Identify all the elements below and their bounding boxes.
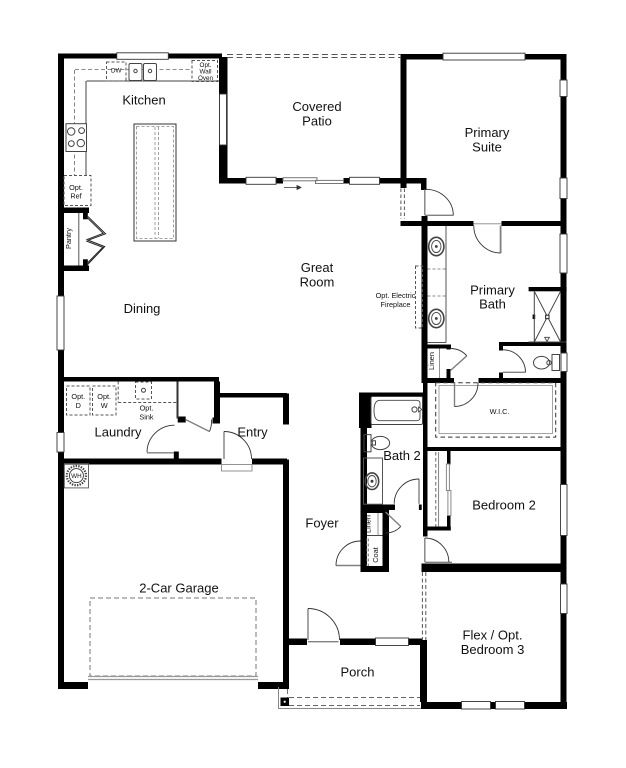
svg-text:Room: Room [300, 275, 335, 290]
svg-text:Opt.: Opt. [140, 404, 154, 413]
svg-text:WH: WH [71, 473, 82, 480]
svg-text:Bath: Bath [479, 297, 506, 312]
svg-text:Great: Great [301, 260, 334, 275]
svg-text:Primary: Primary [470, 283, 515, 298]
svg-text:Oven: Oven [198, 75, 214, 82]
svg-text:Porch: Porch [341, 665, 375, 680]
svg-text:Linen: Linen [427, 352, 436, 370]
svg-text:D: D [76, 401, 81, 410]
svg-text:Opt.: Opt. [97, 392, 111, 401]
svg-text:Opt. Electric: Opt. Electric [376, 291, 416, 300]
svg-text:Primary: Primary [465, 125, 510, 140]
svg-text:Pantry: Pantry [64, 228, 73, 249]
svg-text:Laundry: Laundry [95, 425, 142, 440]
svg-text:Patio: Patio [302, 114, 332, 129]
svg-text:DW: DW [111, 68, 122, 75]
svg-text:Covered: Covered [292, 99, 341, 114]
svg-text:Sink: Sink [139, 413, 154, 422]
svg-text:Kitchen: Kitchen [122, 93, 165, 108]
svg-text:Entry: Entry [237, 425, 268, 440]
svg-text:Fireplace: Fireplace [380, 300, 410, 309]
svg-text:W.I.C.: W.I.C. [490, 407, 510, 416]
svg-text:Linen: Linen [364, 515, 373, 533]
svg-text:Bedroom 2: Bedroom 2 [472, 498, 536, 513]
svg-text:Opt.: Opt. [71, 392, 85, 401]
svg-text:Coat: Coat [371, 547, 380, 562]
svg-text:Suite: Suite [472, 140, 502, 155]
svg-text:Foyer: Foyer [305, 516, 339, 531]
svg-text:Bath 2: Bath 2 [383, 448, 421, 463]
svg-text:Bedroom 3: Bedroom 3 [461, 642, 525, 657]
svg-text:W: W [101, 401, 108, 410]
svg-text:Flex / Opt.: Flex / Opt. [463, 628, 523, 643]
svg-text:Ref: Ref [70, 192, 82, 201]
svg-text:Dining: Dining [124, 301, 161, 316]
svg-text:2-Car Garage: 2-Car Garage [139, 581, 218, 596]
